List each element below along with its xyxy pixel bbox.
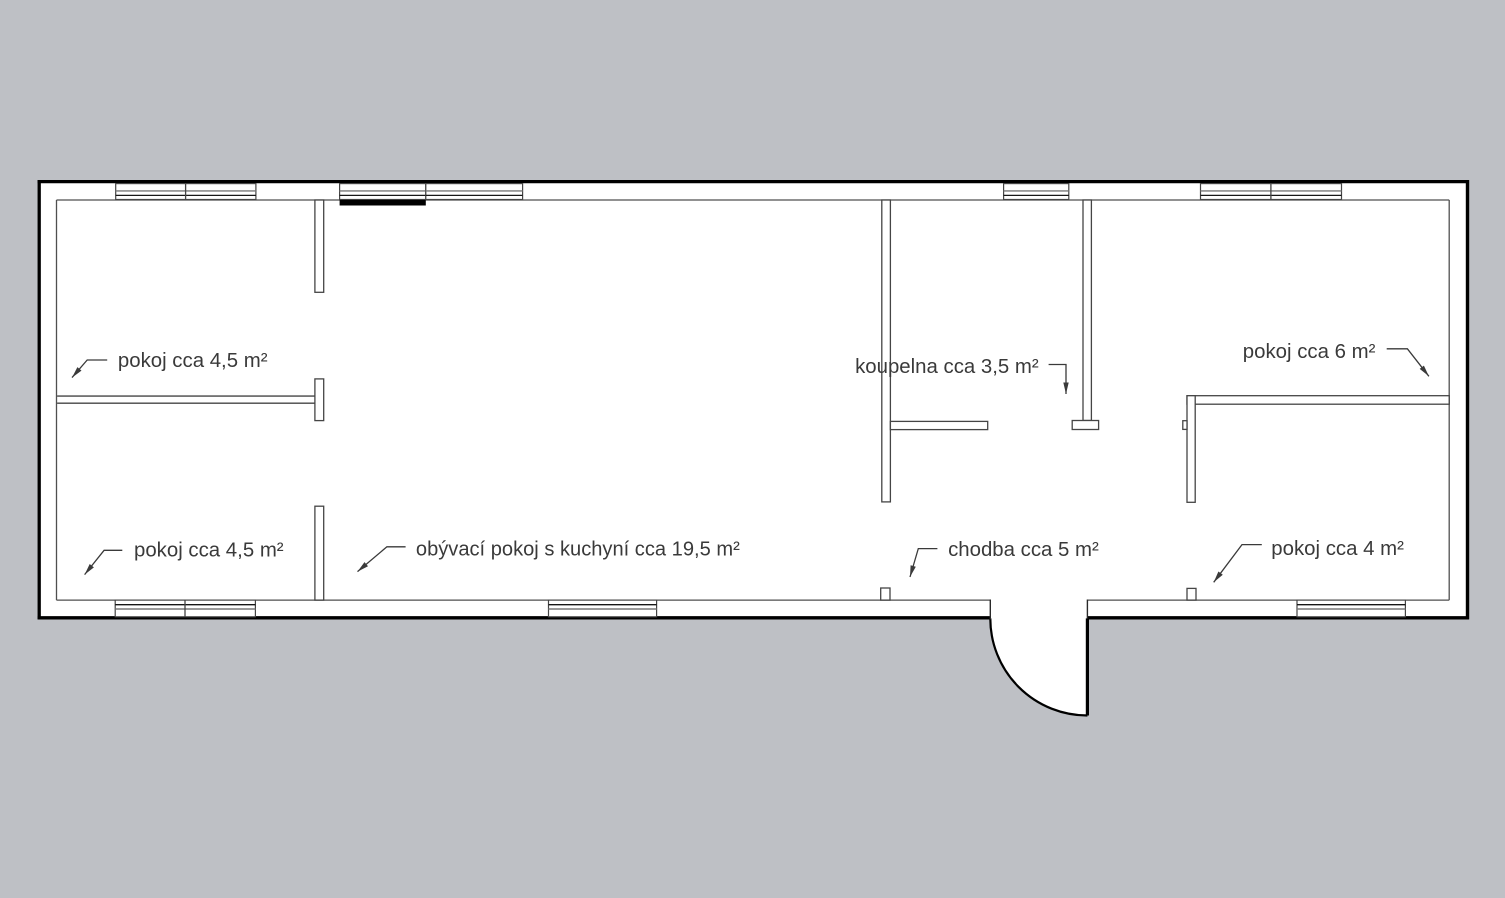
svg-text:pokoj cca 4 m²: pokoj cca 4 m² xyxy=(1271,538,1404,560)
svg-text:pokoj cca 4,5 m²: pokoj cca 4,5 m² xyxy=(134,540,284,562)
svg-text:obývací pokoj s kuchyní cca 19: obývací pokoj s kuchyní cca 19,5 m² xyxy=(416,539,740,561)
svg-text:pokoj cca 6 m²: pokoj cca 6 m² xyxy=(1243,341,1376,363)
svg-text:pokoj cca 4,5 m²: pokoj cca 4,5 m² xyxy=(118,350,268,372)
svg-text:chodba cca 5 m²: chodba cca 5 m² xyxy=(948,539,1099,561)
svg-text:koupelna cca 3,5 m²: koupelna cca 3,5 m² xyxy=(855,356,1039,378)
